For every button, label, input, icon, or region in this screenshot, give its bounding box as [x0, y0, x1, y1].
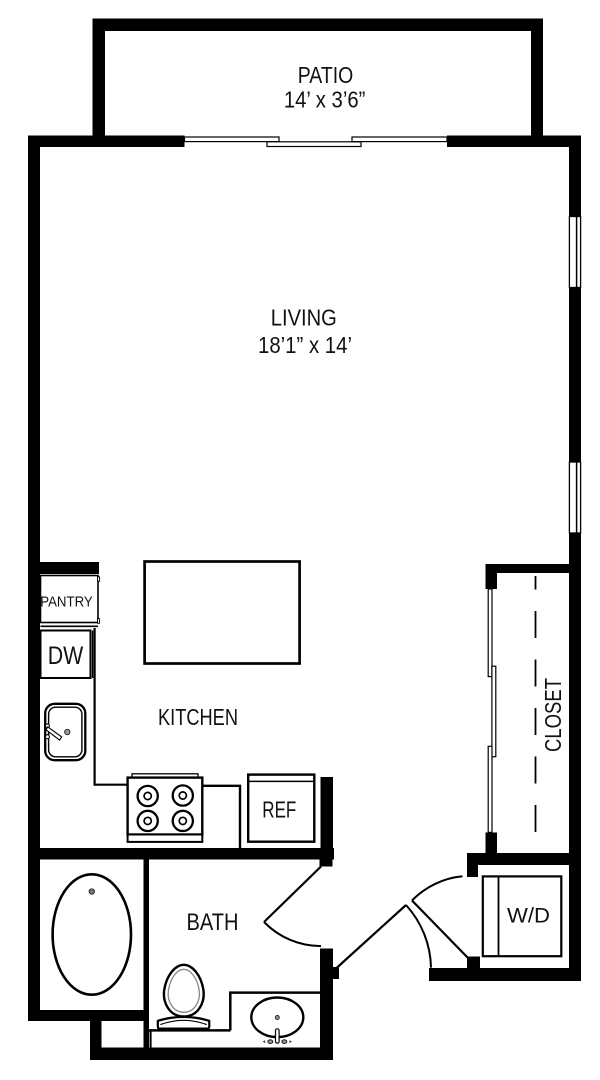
- svg-text:DW: DW: [48, 642, 84, 670]
- svg-text:REF: REF: [262, 797, 296, 823]
- svg-text:PATIO: PATIO: [298, 62, 354, 88]
- svg-text:18’1” x 14’: 18’1” x 14’: [258, 332, 352, 358]
- svg-text:KITCHEN: KITCHEN: [158, 704, 238, 730]
- svg-text:14’ x 3’6”: 14’ x 3’6”: [284, 87, 366, 113]
- svg-text:PANTRY: PANTRY: [40, 593, 93, 610]
- svg-text:BATH: BATH: [187, 909, 239, 936]
- svg-text:W/D: W/D: [507, 903, 550, 927]
- svg-text:LIVING: LIVING: [271, 305, 337, 331]
- svg-text:CLOSET: CLOSET: [540, 678, 566, 752]
